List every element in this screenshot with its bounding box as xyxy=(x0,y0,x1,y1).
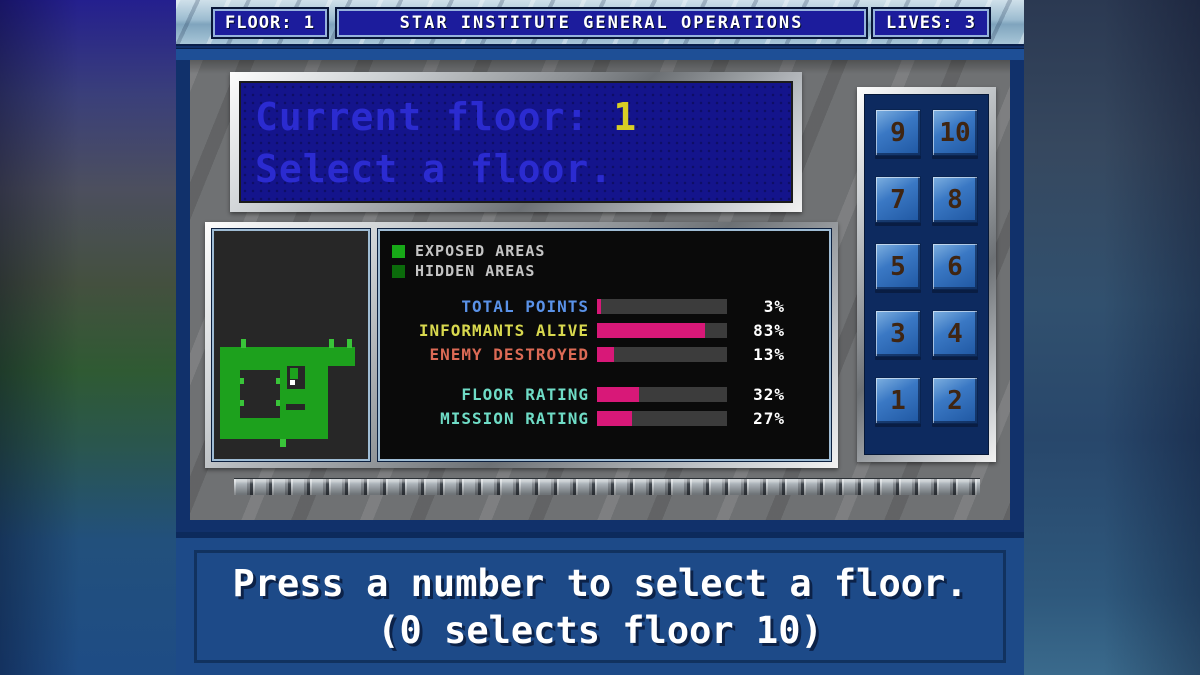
floor-map-svg xyxy=(214,231,368,459)
message-line-2: (0 selects floor 10) xyxy=(377,609,823,652)
legend-exposed: EXPOSED AREAS xyxy=(392,241,817,261)
display-line-prompt: Select a floor. xyxy=(255,143,791,195)
bar-track xyxy=(597,347,727,362)
stat-label: MISSION RATING xyxy=(392,409,597,428)
stat-label: ENEMY DESTROYED xyxy=(392,345,597,364)
map-detail xyxy=(290,368,298,379)
floor-map xyxy=(212,229,370,461)
exposed-areas-label: EXPOSED AREAS xyxy=(415,242,545,260)
keypad-button-8[interactable]: 8 xyxy=(932,176,978,223)
divider-strip xyxy=(176,48,1024,60)
keypad-button-9[interactable]: 9 xyxy=(875,109,921,156)
game-screen: FLOOR: 1 STAR INSTITUTE GENERAL OPERATIO… xyxy=(0,0,1200,675)
stat-row-informants-alive: INFORMANTS ALIVE 83% xyxy=(392,319,817,341)
lcd-screen: Current floor: 1 Select a floor. xyxy=(239,81,793,203)
game-viewport: FLOOR: 1 STAR INSTITUTE GENERAL OPERATIO… xyxy=(176,0,1024,675)
vent-grille xyxy=(234,478,980,495)
current-floor-value: 1 xyxy=(613,95,637,139)
keypad-button-2[interactable]: 2 xyxy=(932,377,978,424)
stat-pct: 83% xyxy=(727,321,785,340)
bar-fill xyxy=(597,411,632,426)
stat-row-total-points: TOTAL POINTS 3% xyxy=(392,295,817,317)
lives-indicator: LIVES: 3 xyxy=(873,9,989,37)
bar-fill xyxy=(597,387,639,402)
top-status-bar: FLOOR: 1 STAR INSTITUTE GENERAL OPERATIO… xyxy=(176,0,1024,46)
status-readout: EXPOSED AREAS HIDDEN AREAS TOTAL POINTS … xyxy=(205,222,838,468)
stats-box: EXPOSED AREAS HIDDEN AREAS TOTAL POINTS … xyxy=(378,229,831,461)
keypad-button-6[interactable]: 6 xyxy=(932,243,978,290)
stat-label: TOTAL POINTS xyxy=(392,297,597,316)
bar-fill xyxy=(597,347,614,362)
stat-pct: 3% xyxy=(727,297,785,316)
mission-title: STAR INSTITUTE GENERAL OPERATIONS xyxy=(337,9,866,37)
background-blur-left xyxy=(0,0,176,675)
stat-row-enemy-destroyed: ENEMY DESTROYED 13% xyxy=(392,343,817,365)
bar-track xyxy=(597,299,727,314)
stat-label: FLOOR RATING xyxy=(392,385,597,404)
keypad-button-5[interactable]: 5 xyxy=(875,243,921,290)
bar-track xyxy=(597,411,727,426)
keypad-grid: 9 10 7 8 5 6 3 4 1 2 xyxy=(864,94,989,455)
hidden-areas-label: HIDDEN AREAS xyxy=(415,262,535,280)
stat-pct: 27% xyxy=(727,409,785,428)
keypad-button-7[interactable]: 7 xyxy=(875,176,921,223)
current-floor-label: Current floor: xyxy=(255,95,589,139)
map-player-dot xyxy=(290,380,295,385)
floor-keypad: 9 10 7 8 5 6 3 4 1 2 xyxy=(857,87,996,462)
stat-pct: 32% xyxy=(727,385,785,404)
exposed-areas-swatch xyxy=(392,245,405,258)
keypad-button-3[interactable]: 3 xyxy=(875,310,921,357)
stat-pct: 13% xyxy=(727,345,785,364)
message-board-inner: Press a number to select a floor. (0 sel… xyxy=(194,550,1006,663)
legend-hidden: HIDDEN AREAS xyxy=(392,261,817,281)
stat-bars: TOTAL POINTS 3% INFORMANTS ALIVE 83% ENE… xyxy=(392,295,817,429)
stat-row-floor-rating: FLOOR RATING 32% xyxy=(392,383,817,405)
bar-track xyxy=(597,387,727,402)
display-line-current-floor: Current floor: 1 xyxy=(255,91,791,143)
message-line-1: Press a number to select a floor. xyxy=(232,562,967,605)
bar-track xyxy=(597,323,727,338)
stat-row-mission-rating: MISSION RATING 27% xyxy=(392,407,817,429)
bar-fill xyxy=(597,299,601,314)
background-blur-right xyxy=(1024,0,1200,675)
keypad-button-10[interactable]: 10 xyxy=(932,109,978,156)
keypad-button-1[interactable]: 1 xyxy=(875,377,921,424)
lcd-display: Current floor: 1 Select a floor. xyxy=(230,72,802,212)
floor-indicator: FLOOR: 1 xyxy=(213,9,327,37)
hidden-areas-swatch xyxy=(392,265,405,278)
message-board: Press a number to select a floor. (0 sel… xyxy=(176,532,1024,675)
elevator-panel: Current floor: 1 Select a floor. 9 10 7 … xyxy=(176,60,1024,532)
stat-label: INFORMANTS ALIVE xyxy=(392,321,597,340)
keypad-button-4[interactable]: 4 xyxy=(932,310,978,357)
bar-fill xyxy=(597,323,705,338)
